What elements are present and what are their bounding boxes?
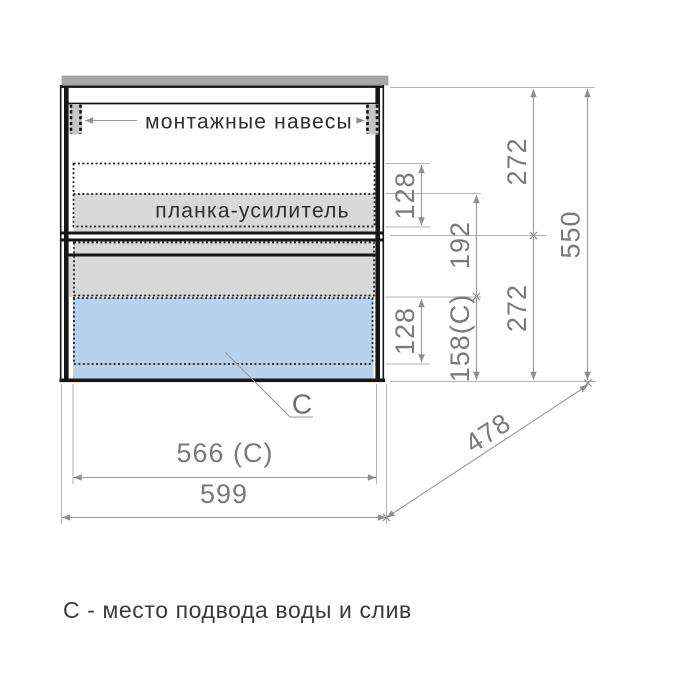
cabinet-bottom-edge — [60, 379, 386, 383]
reinforcement-zone: планка-усилитель — [74, 164, 375, 232]
drawer-back-strip-fill — [74, 243, 374, 254]
drawer-front-top-edge — [68, 254, 376, 257]
dim-drain-height: 128 — [390, 307, 420, 355]
drawing-page: монтажные навесы планка-усилитель — [0, 0, 700, 700]
mounting-hangers: монтажные навесы — [70, 104, 379, 135]
lower-box-top-edge — [60, 239, 384, 242]
dim-total-width: 599 — [200, 479, 248, 509]
drain-zone: С — [73, 298, 374, 420]
dim-bottom-section: 272 — [502, 284, 532, 332]
dim-top-section: 272 — [502, 137, 532, 185]
drawer-panel-fill — [69, 257, 376, 298]
vanity-technical-drawing: монтажные навесы планка-усилитель — [0, 0, 700, 700]
mounting-hangers-label: монтажные навесы — [145, 111, 353, 134]
drawer-section — [68, 243, 376, 298]
cabinet-top-edge — [60, 86, 384, 88]
drain-zone-fill — [73, 298, 374, 379]
c-marker-label: С — [292, 389, 312, 420]
upper-box-bottom-edge — [60, 232, 384, 235]
dim-strip-height: 128 — [390, 171, 420, 219]
countertop-edge — [62, 76, 388, 85]
cabinet-body: монтажные навесы планка-усилитель — [60, 76, 389, 420]
dim-inner-width: 566 (С) — [176, 438, 273, 468]
dim-drain-offset: 158(С) — [445, 294, 475, 383]
drawing-caption: С - место подвода воды и слив — [63, 597, 412, 623]
dim-strip-offset: 192 — [445, 221, 475, 269]
dim-total-height: 550 — [556, 210, 586, 258]
reinforcement-strip-label: планка-усилитель — [155, 200, 349, 223]
